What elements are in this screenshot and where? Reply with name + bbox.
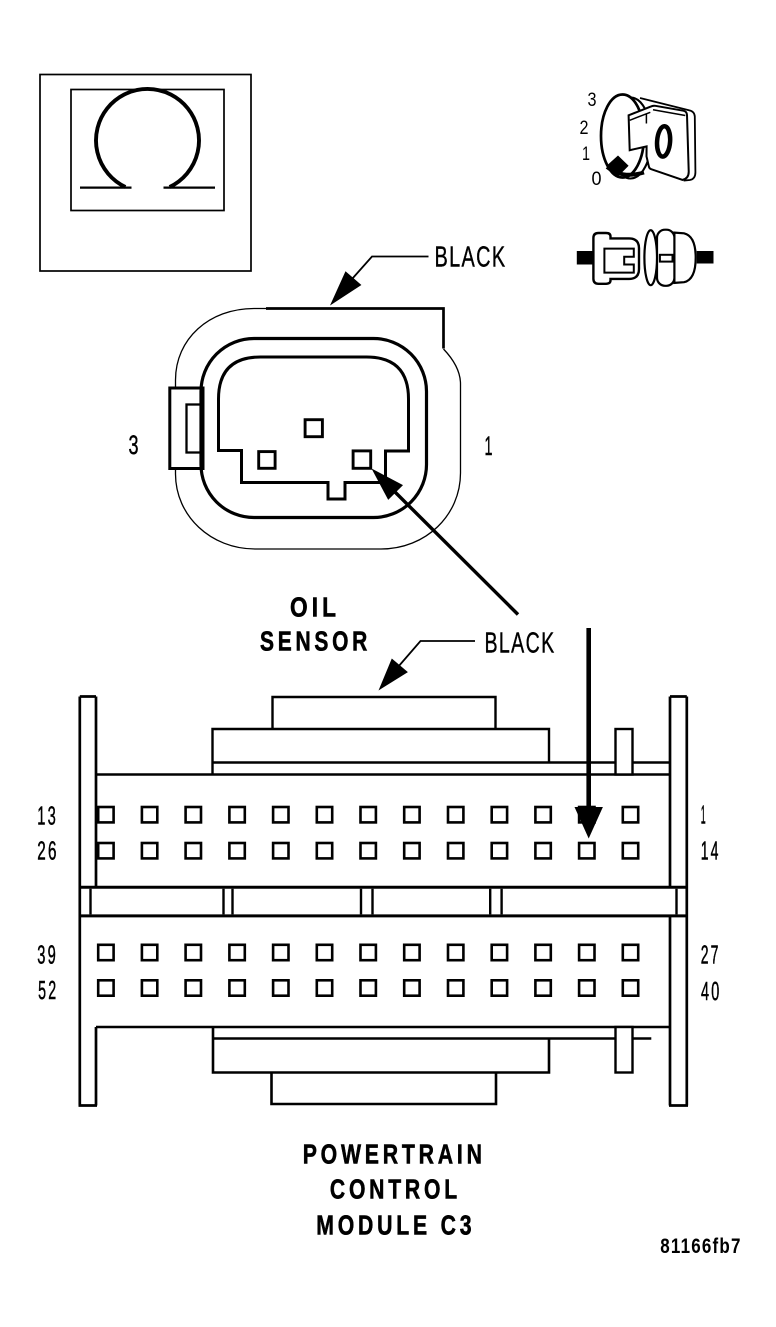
svg-text:81166fb7: 81166fb7: [660, 1235, 742, 1258]
svg-text:BLACK: BLACK: [435, 242, 507, 274]
svg-text:1: 1: [485, 431, 493, 461]
svg-text:14: 14: [701, 836, 721, 866]
svg-text:SENSOR: SENSOR: [260, 626, 371, 657]
svg-text:40: 40: [701, 976, 722, 1006]
svg-text:MODULE C3: MODULE C3: [316, 1210, 475, 1241]
svg-text:39: 39: [37, 940, 58, 970]
svg-text:2: 2: [580, 118, 589, 139]
svg-text:OIL: OIL: [290, 592, 340, 623]
svg-text:13: 13: [37, 800, 58, 830]
svg-text:3: 3: [129, 430, 139, 460]
svg-text:52: 52: [38, 975, 58, 1005]
svg-text:3: 3: [588, 90, 597, 111]
svg-text:0: 0: [592, 169, 602, 190]
svg-text:1: 1: [701, 799, 707, 829]
svg-text:POWERTRAIN: POWERTRAIN: [303, 1138, 486, 1169]
svg-text:26: 26: [37, 836, 59, 866]
svg-text:BLACK: BLACK: [485, 628, 556, 660]
svg-text:CONTROL: CONTROL: [330, 1173, 461, 1204]
svg-text:27: 27: [701, 940, 721, 970]
svg-text:1: 1: [582, 144, 590, 165]
